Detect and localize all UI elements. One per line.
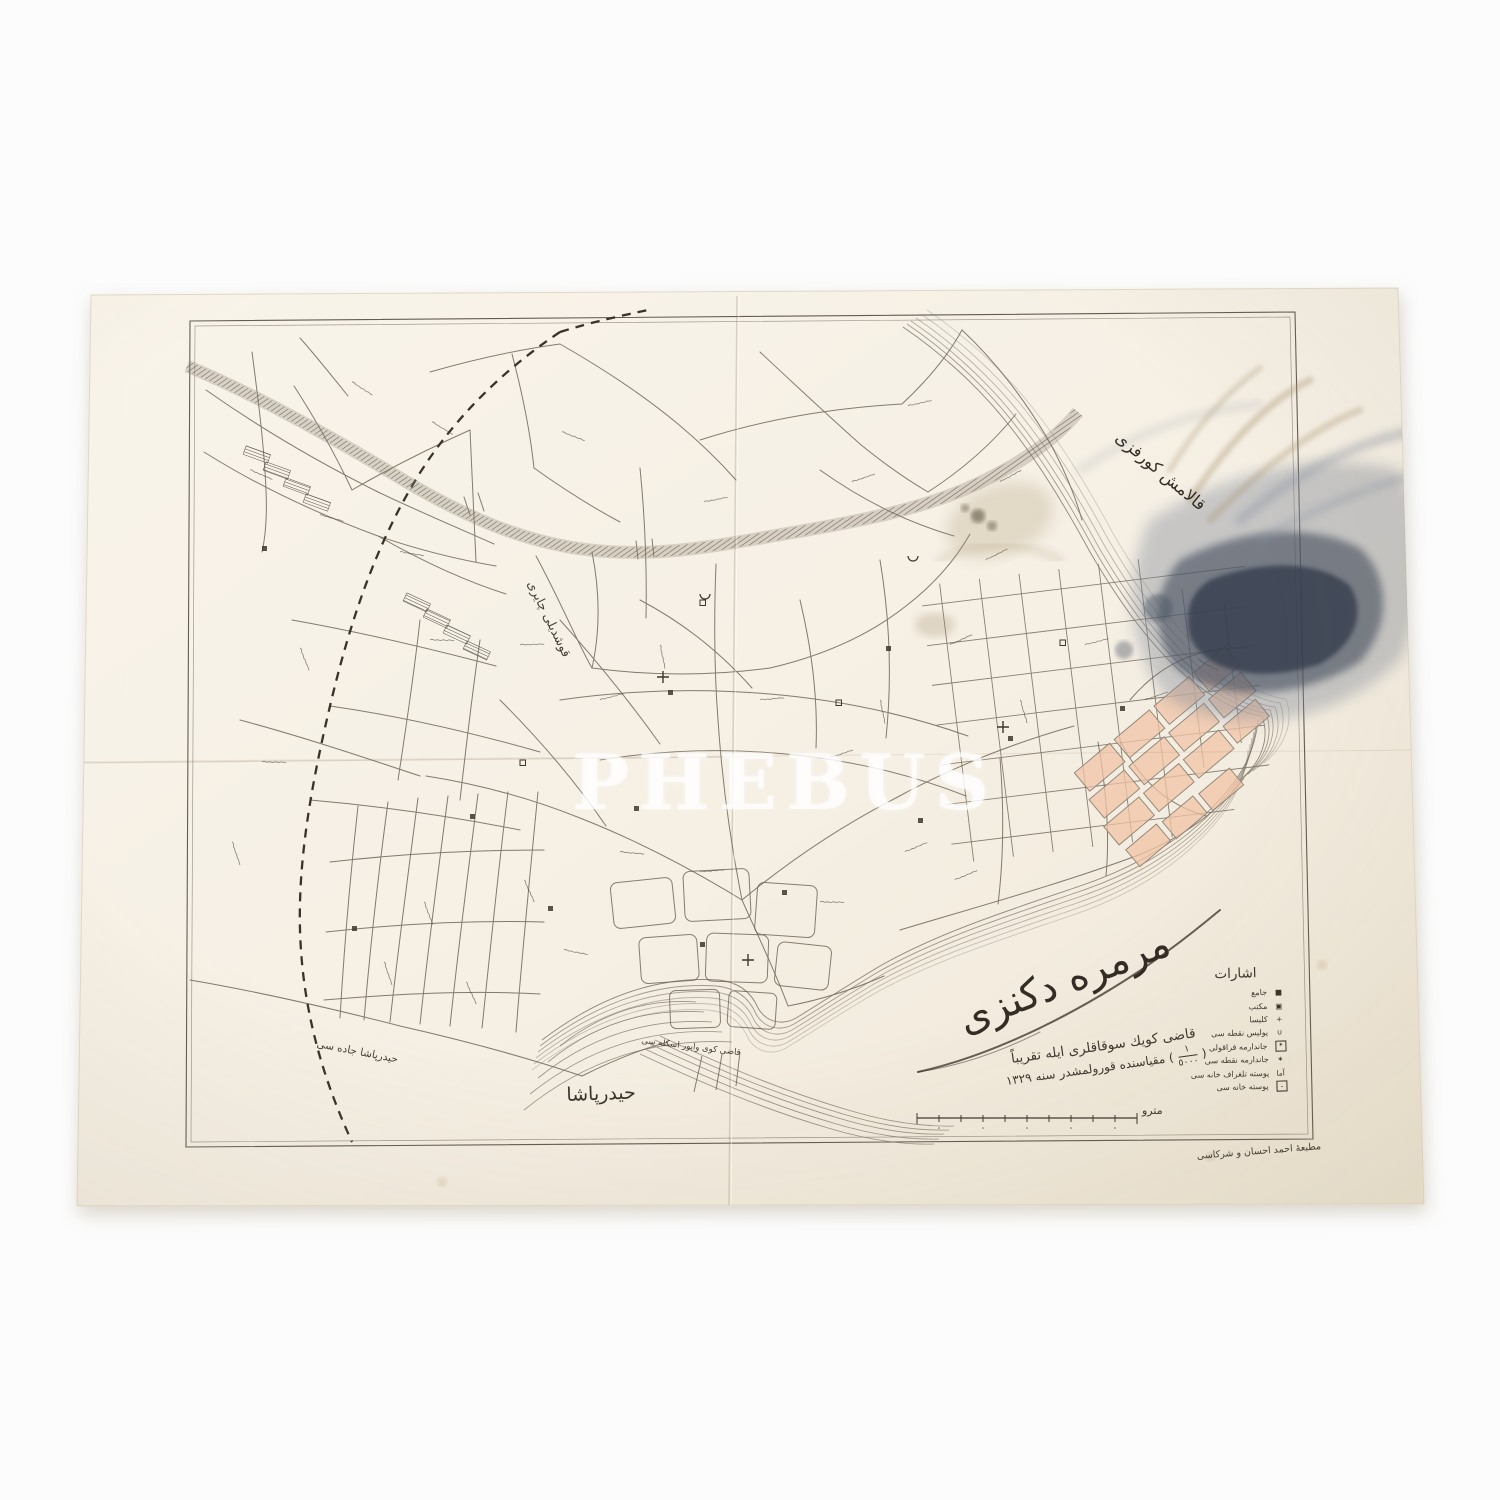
legend-label: پوليس نقطه سى [1211,1028,1268,1038]
school-icon: ▣ [1272,1001,1285,1010]
legend-label: پوسته تلغراف خانه سى [1191,1068,1270,1079]
legend-heading: اشارات [1148,964,1300,984]
scale-fraction: ١ ٥٠٠٠ [1176,1043,1199,1068]
gendarme-station-icon: ✶ [1275,1040,1286,1051]
scale-fraction-denominator: ٥٠٠٠ [1178,1055,1200,1068]
scale-unit-label: مترو [1142,1104,1163,1117]
auction-photo: قالامش كورفزى قوشديلى چايرى مرمره دكنزى … [0,0,1500,1500]
police-point-icon: ∪ [1273,1028,1286,1037]
year-text: سنه ١٣٢٩ [1005,1067,1056,1088]
legend-label: پوسته خانه سى [1216,1082,1268,1092]
watermark-overlay: PHEBUS [572,738,998,827]
legend-label: جاندارمه نقطه سى [1205,1055,1269,1066]
legend-label: كليسا [1249,1015,1268,1024]
church-icon: + [1273,1014,1286,1023]
mosque-icon: ■ [1272,988,1285,997]
gendarme-point-icon: ✶ [1274,1055,1287,1064]
paren-open: ( [1201,1046,1208,1061]
post-office-icon: ـ [1276,1080,1287,1091]
legend-label: مكتب [1248,1001,1267,1010]
paren-close: ) [1168,1051,1175,1066]
post-telegraph-icon: آما [1274,1068,1287,1077]
legend-label: جامع [1251,988,1267,997]
legend-label: جاندارمه قراقولى [1209,1042,1268,1053]
district-label: حيدرپاشا [566,1082,636,1106]
